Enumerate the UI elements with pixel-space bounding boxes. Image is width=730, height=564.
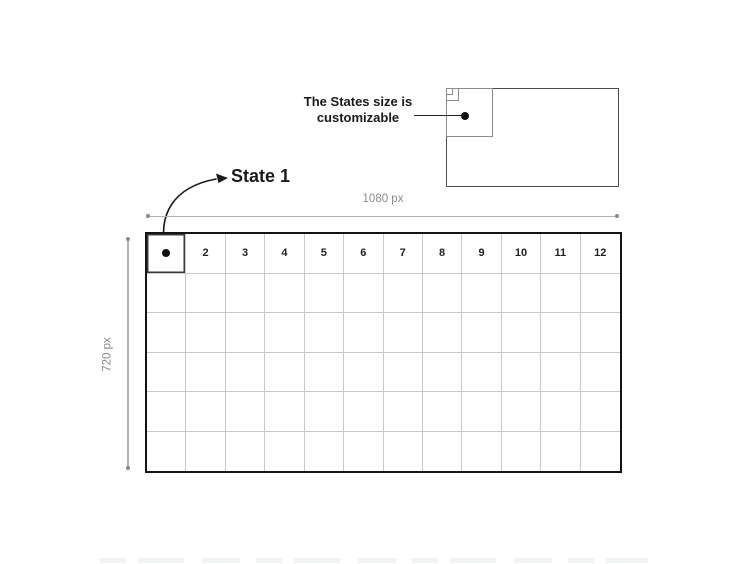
grid-cell: [502, 432, 541, 472]
width-dim-end-right: [615, 214, 619, 218]
grid-cell: [344, 313, 383, 353]
height-dimension-line: [127, 239, 128, 468]
grid-cell: [462, 353, 501, 393]
grid-cell: [226, 313, 265, 353]
grid-cell: [462, 313, 501, 353]
grid-cell: [541, 274, 580, 314]
grid-cell: [147, 432, 186, 472]
grid-cell: [502, 392, 541, 432]
grid-cell: [305, 432, 344, 472]
grid-cell: [344, 432, 383, 472]
grid-header-cell: 7: [384, 234, 423, 274]
grid-header-cell: 9: [462, 234, 501, 274]
state-grid: 23456789101112: [145, 232, 622, 473]
grid-cell: [226, 432, 265, 472]
grid-cell: [581, 353, 620, 393]
height-dim-end-top: [126, 237, 130, 241]
grid-cell: [186, 353, 225, 393]
grid-cell: [462, 392, 501, 432]
width-dimension-line: [149, 216, 617, 217]
grid-cell: [502, 274, 541, 314]
grid-cell: [502, 353, 541, 393]
grid-cell: [186, 313, 225, 353]
diagram-canvas: The States size is customizable State 1 …: [0, 0, 730, 564]
note-connector-line: [414, 115, 464, 116]
width-dimension-label: 1080 px: [343, 193, 423, 205]
height-dim-end-bottom: [126, 466, 130, 470]
grid-cell: [344, 392, 383, 432]
grid-cell: [581, 313, 620, 353]
grid-cell: [305, 392, 344, 432]
grid-cell: [541, 353, 580, 393]
grid-cell: [226, 392, 265, 432]
grid-cell: [305, 274, 344, 314]
grid-cell: [186, 432, 225, 472]
grid-cell: [384, 353, 423, 393]
grid-cell: [541, 392, 580, 432]
grid-header-cell: 11: [541, 234, 580, 274]
mini-state-tiny-rect: [446, 88, 453, 95]
customizable-note-line2: customizable: [300, 110, 416, 126]
grid-cell: [186, 274, 225, 314]
grid-cell: [581, 432, 620, 472]
grid-cell: [147, 392, 186, 432]
grid-cell: [462, 274, 501, 314]
grid-cell: [384, 313, 423, 353]
grid-cell: [541, 313, 580, 353]
width-dim-end-left: [146, 214, 150, 218]
grid-header-cell: 5: [305, 234, 344, 274]
grid-cell: [344, 274, 383, 314]
grid-header-cell: 10: [502, 234, 541, 274]
grid-cell: [423, 274, 462, 314]
grid-cell: [186, 392, 225, 432]
grid-cell: [423, 392, 462, 432]
customizable-note: The States size is customizable: [300, 94, 416, 126]
grid-cell: [502, 313, 541, 353]
grid-cell: [581, 392, 620, 432]
grid-cell: [384, 274, 423, 314]
grid-cell: [305, 313, 344, 353]
grid-cell: [226, 274, 265, 314]
height-dimension-label: 720 px: [102, 331, 115, 379]
grid-cell: [265, 313, 304, 353]
grid-cell: [423, 432, 462, 472]
grid-cell: [462, 432, 501, 472]
grid-cell: [541, 432, 580, 472]
grid-header-cell: 4: [265, 234, 304, 274]
state1-cell: [147, 234, 186, 274]
grid-cell: [384, 392, 423, 432]
grid-cell: [265, 432, 304, 472]
grid-cell: [265, 274, 304, 314]
grid-cell: [581, 274, 620, 314]
grid-cell: [147, 353, 186, 393]
grid-cell: [384, 432, 423, 472]
grid-header-cell: 2: [186, 234, 225, 274]
grid-header-cell: 6: [344, 234, 383, 274]
grid-cell: [147, 313, 186, 353]
grid-header-cell: 8: [423, 234, 462, 274]
grid-cell: [423, 313, 462, 353]
bottom-cropped-text-artifact: [100, 558, 648, 563]
state1-label: State 1: [231, 166, 290, 187]
grid-cell: [147, 274, 186, 314]
grid-header-cell: 3: [226, 234, 265, 274]
grid-cell: [305, 353, 344, 393]
grid-cell: [226, 353, 265, 393]
grid-cell: [265, 392, 304, 432]
grid-header-cell: 12: [581, 234, 620, 274]
grid-cell: [265, 353, 304, 393]
customizable-note-line1: The States size is: [300, 94, 416, 110]
grid-cell: [344, 353, 383, 393]
state1-dot: [162, 249, 170, 257]
grid-cell: [423, 353, 462, 393]
